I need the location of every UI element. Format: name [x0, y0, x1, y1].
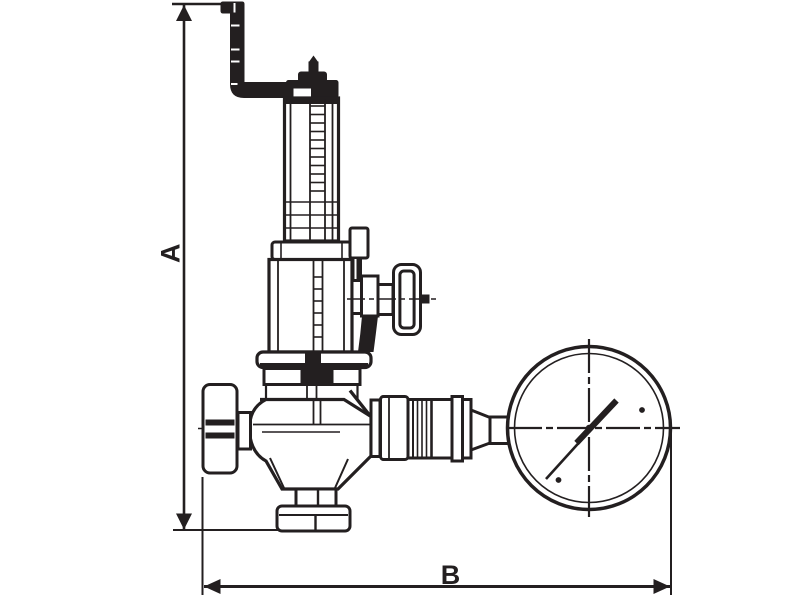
svg-text:B: B [441, 560, 461, 590]
svg-text:A: A [156, 244, 186, 263]
